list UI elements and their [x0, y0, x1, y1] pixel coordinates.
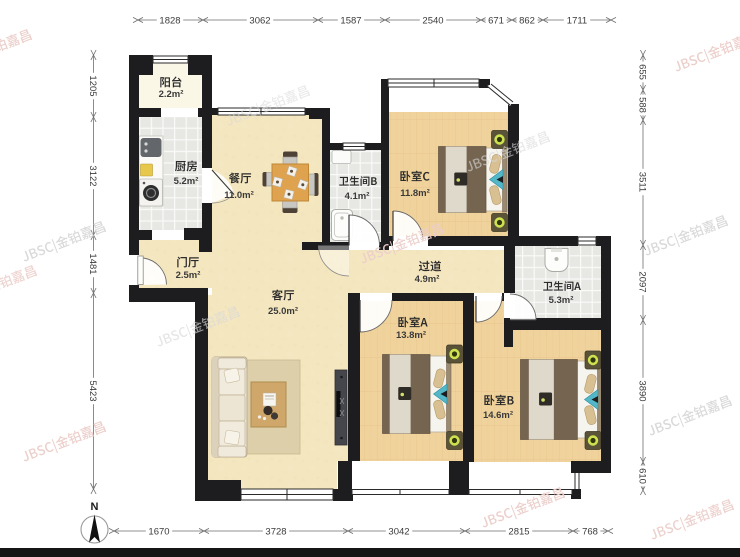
svg-text:1670: 1670 — [148, 526, 169, 537]
svg-text:1587: 1587 — [340, 15, 361, 26]
svg-text:N: N — [91, 501, 99, 513]
svg-text:1828: 1828 — [159, 15, 180, 26]
svg-text:1205: 1205 — [87, 75, 98, 96]
svg-text:3042: 3042 — [388, 526, 409, 537]
svg-text:2540: 2540 — [422, 15, 443, 26]
svg-text:3122: 3122 — [87, 165, 98, 186]
svg-text:655: 655 — [637, 64, 648, 80]
svg-text:11.8m²: 11.8m² — [400, 188, 430, 199]
svg-text:1481: 1481 — [87, 253, 98, 274]
svg-text:14.6m²: 14.6m² — [483, 410, 513, 421]
svg-text:588: 588 — [637, 97, 648, 113]
svg-text:3062: 3062 — [249, 15, 270, 26]
svg-text:25.0m²: 25.0m² — [268, 306, 298, 317]
svg-text:610: 610 — [637, 468, 648, 484]
svg-text:4.9m²: 4.9m² — [415, 274, 440, 285]
svg-text:862: 862 — [519, 15, 535, 26]
svg-text:5.2m²: 5.2m² — [174, 176, 199, 187]
svg-text:768: 768 — [582, 526, 598, 537]
svg-text:2815: 2815 — [508, 526, 529, 537]
svg-text:2.2m²: 2.2m² — [159, 89, 184, 100]
svg-text:3890: 3890 — [637, 380, 648, 401]
svg-text:3728: 3728 — [265, 526, 286, 537]
svg-text:671: 671 — [488, 15, 504, 26]
svg-text:4.1m²: 4.1m² — [345, 191, 370, 202]
svg-text:5.3m²: 5.3m² — [549, 295, 574, 306]
svg-text:11.0m²: 11.0m² — [224, 190, 254, 201]
svg-text:5423: 5423 — [87, 380, 98, 401]
svg-text:2097: 2097 — [637, 271, 648, 292]
svg-text:3511: 3511 — [637, 172, 648, 192]
svg-text:2.5m²: 2.5m² — [176, 270, 201, 281]
svg-text:1711: 1711 — [567, 15, 587, 26]
svg-text:13.8m²: 13.8m² — [396, 330, 426, 341]
